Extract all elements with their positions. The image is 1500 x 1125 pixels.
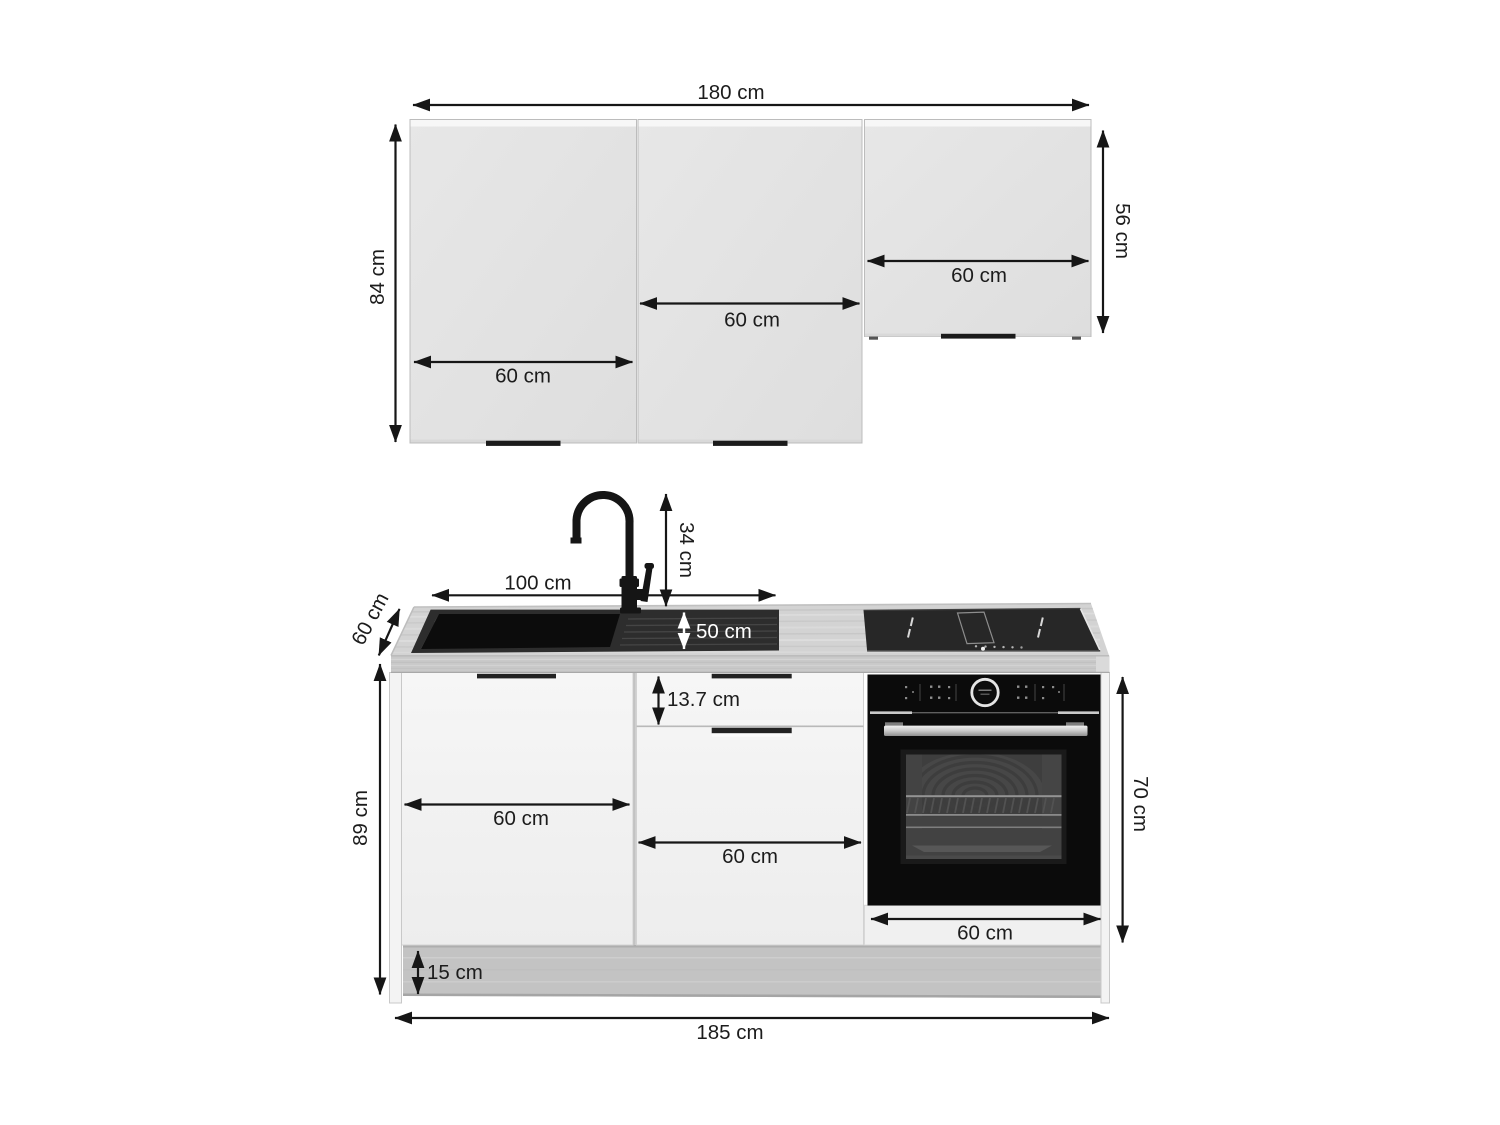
- svg-text:15 cm: 15 cm: [427, 961, 483, 984]
- svg-text:180 cm: 180 cm: [697, 81, 764, 104]
- svg-text:70 cm: 70 cm: [1129, 776, 1152, 832]
- svg-text:56 cm: 56 cm: [1111, 203, 1134, 259]
- svg-text:100 cm: 100 cm: [504, 572, 571, 595]
- svg-text:60 cm: 60 cm: [957, 922, 1013, 945]
- svg-text:13.7 cm: 13.7 cm: [667, 688, 740, 711]
- svg-text:34 cm: 34 cm: [675, 522, 698, 578]
- svg-text:50 cm: 50 cm: [696, 620, 752, 643]
- svg-text:60 cm: 60 cm: [495, 365, 551, 388]
- svg-text:60 cm: 60 cm: [951, 264, 1007, 287]
- svg-text:60 cm: 60 cm: [722, 845, 778, 868]
- svg-text:185 cm: 185 cm: [696, 1021, 763, 1044]
- svg-text:89 cm: 89 cm: [349, 790, 372, 846]
- svg-text:84 cm: 84 cm: [366, 249, 389, 305]
- svg-text:60 cm: 60 cm: [493, 807, 549, 830]
- svg-text:60 cm: 60 cm: [724, 309, 780, 332]
